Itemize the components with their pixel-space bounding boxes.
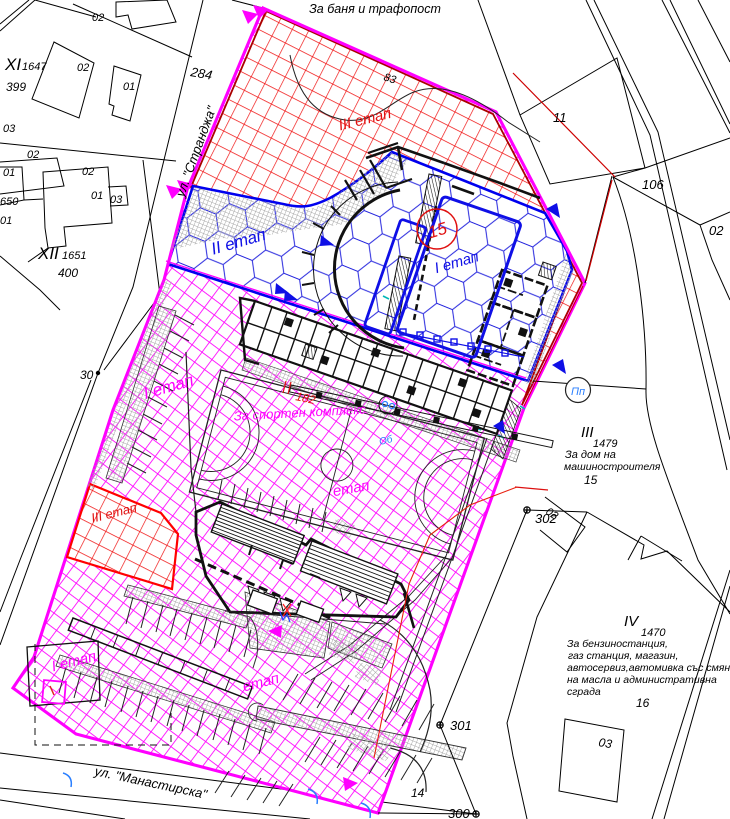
svg-text:02: 02 bbox=[77, 62, 89, 74]
svg-text:02: 02 bbox=[92, 12, 104, 24]
svg-text:02: 02 bbox=[27, 149, 39, 161]
svg-text:400: 400 bbox=[58, 266, 78, 280]
svg-text:301: 301 bbox=[450, 718, 472, 733]
svg-text:XI: XI bbox=[4, 55, 21, 74]
svg-text:03: 03 bbox=[110, 194, 123, 206]
svg-text:01: 01 bbox=[123, 81, 135, 93]
svg-text:IV: IV bbox=[624, 613, 640, 630]
svg-text:1651: 1651 bbox=[62, 250, 86, 262]
svg-text:XII: XII bbox=[37, 244, 59, 263]
svg-text:1647: 1647 bbox=[22, 61, 47, 73]
svg-text:106: 106 bbox=[642, 177, 664, 192]
svg-text:15: 15 bbox=[584, 473, 598, 487]
svg-text:02: 02 bbox=[709, 223, 724, 238]
svg-text:01: 01 bbox=[91, 190, 103, 202]
svg-text:650: 650 bbox=[0, 196, 19, 208]
svg-text:автосервиз,автомивка със смяна: автосервиз,автомивка със смяна bbox=[567, 662, 730, 674]
svg-text:16: 16 bbox=[636, 696, 650, 710]
svg-text:сграда: сграда bbox=[567, 686, 601, 698]
svg-text:газ станция, магазин,: газ станция, магазин, bbox=[568, 650, 678, 662]
svg-text:машиностроителя: машиностроителя bbox=[564, 461, 661, 473]
svg-text:За баня и трафопост: За баня и трафопост bbox=[309, 2, 441, 16]
svg-text:01: 01 bbox=[3, 167, 15, 179]
svg-text:Пп: Пп bbox=[571, 386, 585, 398]
svg-text:03: 03 bbox=[3, 123, 16, 135]
svg-text:399: 399 bbox=[6, 80, 26, 94]
svg-text:300: 300 bbox=[448, 806, 470, 819]
svg-text:02: 02 bbox=[82, 166, 94, 178]
svg-text:За бензиностанция,: За бензиностанция, bbox=[567, 638, 668, 650]
svg-text:14: 14 bbox=[411, 786, 425, 800]
svg-text:11: 11 bbox=[553, 110, 567, 125]
svg-text:03: 03 bbox=[597, 735, 613, 751]
svg-text:30: 30 bbox=[80, 368, 94, 382]
svg-text:на масла и административна: на масла и административна bbox=[567, 674, 717, 686]
svg-text:01: 01 bbox=[0, 215, 12, 227]
svg-text:III: III bbox=[581, 424, 594, 441]
svg-text:За дом на: За дом на bbox=[565, 449, 616, 461]
